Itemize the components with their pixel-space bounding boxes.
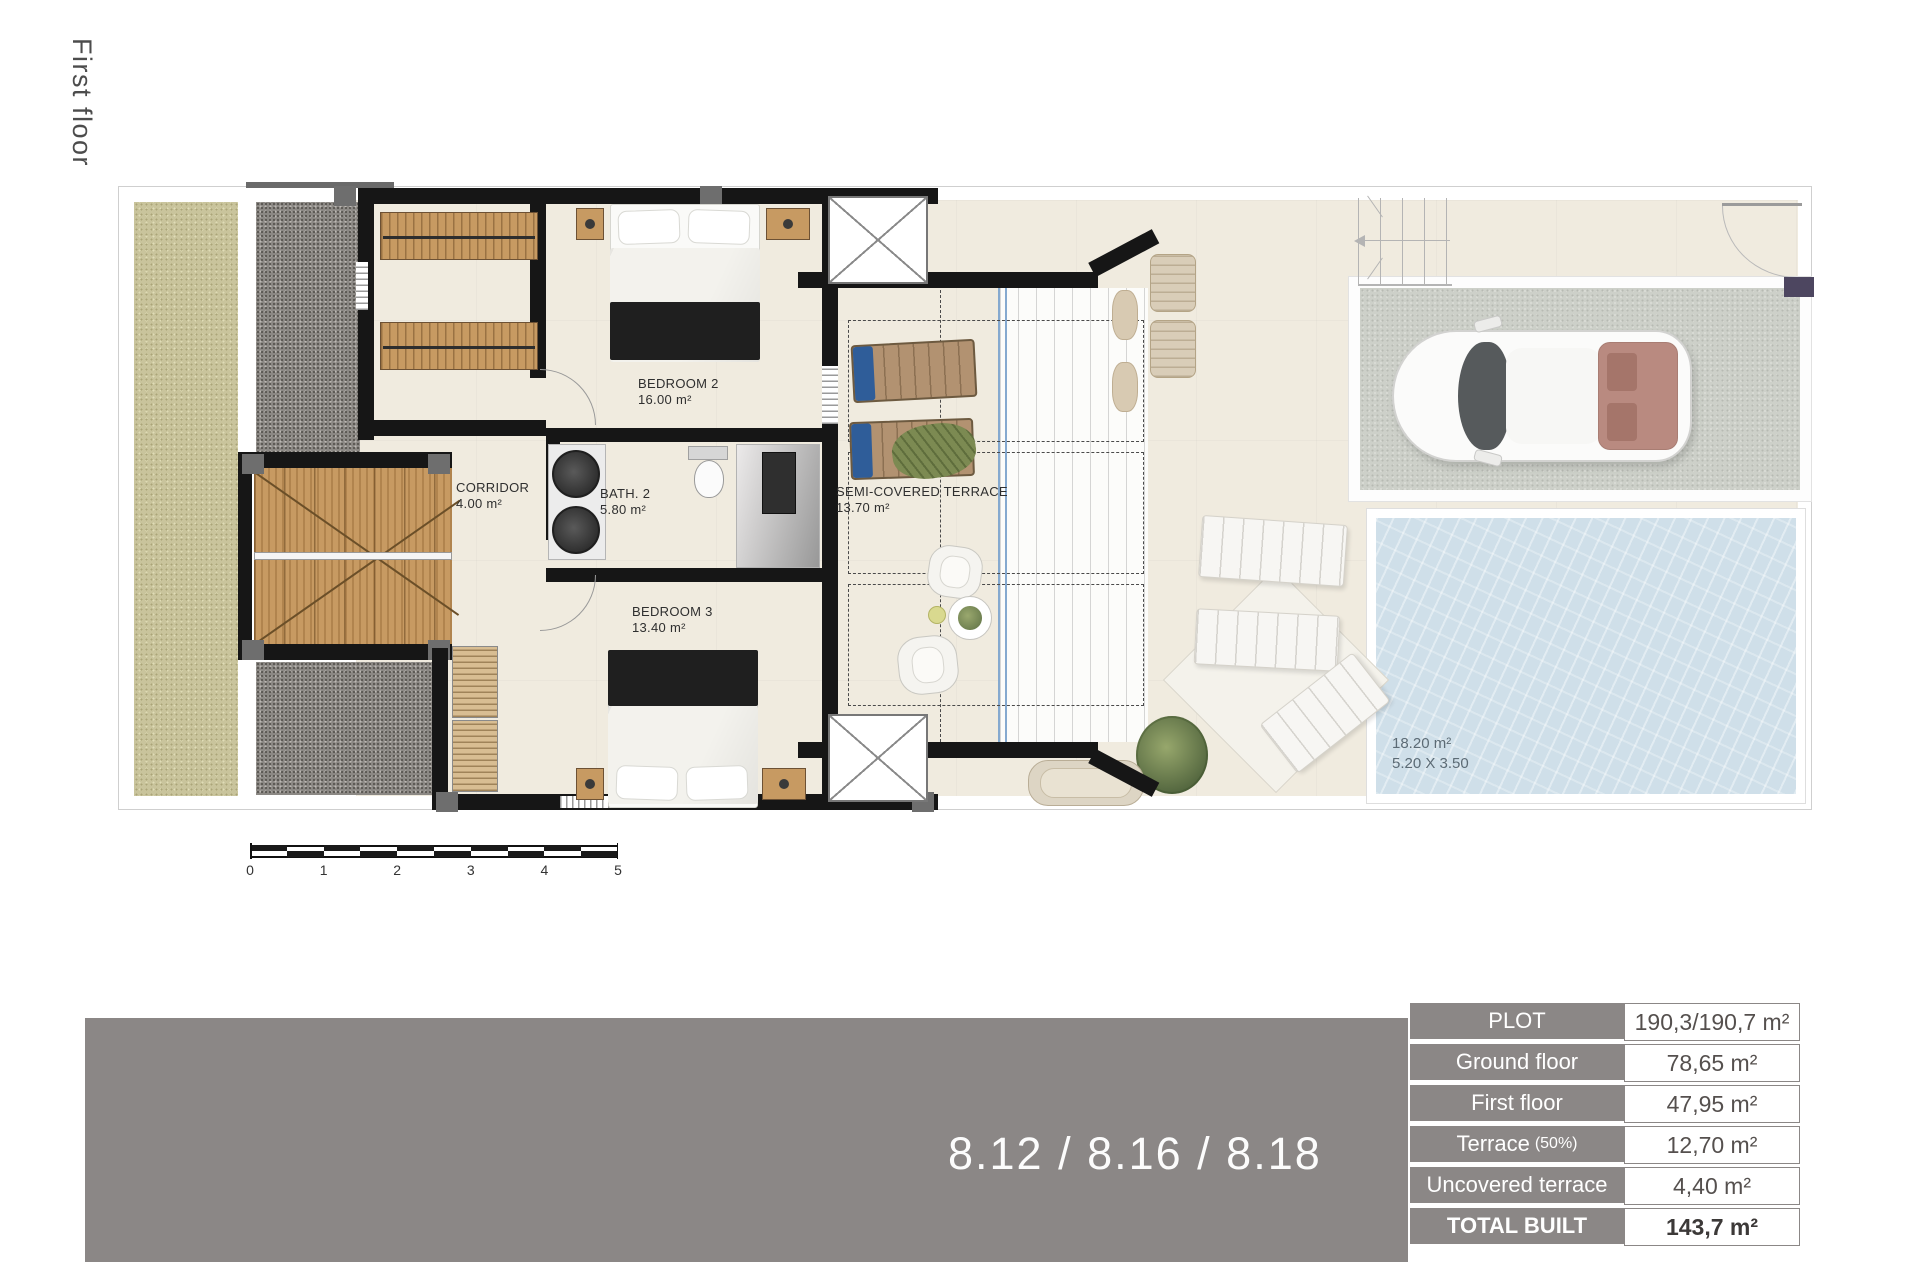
louver-closet-icon — [452, 720, 498, 792]
area-summary-table: PLOT 190,3/190,7 m² Ground floor 78,65 m… — [1410, 1003, 1800, 1249]
armchair-icon — [895, 633, 961, 697]
shaft-icon — [828, 714, 928, 802]
bowl — [928, 606, 946, 624]
sun-lounger-icon — [1194, 608, 1341, 671]
pillow — [617, 209, 680, 245]
wall-post — [436, 792, 458, 812]
nightstand-icon — [576, 768, 604, 800]
round-table-icon — [948, 596, 992, 640]
sun-lounger-icon — [1198, 515, 1348, 587]
scale-bar: 0 1 2 3 4 5 — [250, 843, 618, 883]
sink-icon — [552, 506, 600, 554]
wall — [432, 648, 448, 810]
scale-tick: 3 — [461, 862, 481, 878]
room-label-bedroom2: BEDROOM 2 16.00 m² — [638, 376, 719, 408]
outdoor-seat-icon — [1112, 290, 1138, 340]
grass-strip — [134, 202, 238, 796]
shaft-icon — [828, 196, 928, 284]
stairs-arrow-head — [1354, 235, 1365, 247]
car-windshield — [1458, 342, 1510, 450]
table-row-label: PLOT — [1410, 1003, 1624, 1039]
wall — [358, 188, 374, 440]
wardrobe-icon — [380, 212, 538, 260]
nightstand-icon — [576, 208, 604, 240]
table-row-label-total: TOTAL BUILT — [1410, 1208, 1624, 1244]
pool-label: 18.20 m² 5.20 X 3.50 — [1392, 734, 1469, 774]
room-label-terrace: SEMI-COVERED TERRACE 13.70 m² — [836, 484, 1008, 516]
wall — [238, 452, 252, 660]
wall — [238, 644, 452, 660]
pool-dimensions: 5.20 X 3.50 — [1392, 754, 1469, 774]
bed-throw — [610, 302, 760, 360]
wall-post — [428, 454, 450, 474]
wardrobe-icon — [380, 322, 538, 370]
table-row-label: Ground floor — [1410, 1044, 1624, 1080]
wall — [238, 452, 452, 468]
nightstand-icon — [766, 208, 810, 240]
pool-area: 18.20 m² — [1392, 734, 1469, 754]
table-row-value: 4,40 m² — [1624, 1167, 1800, 1205]
wall — [546, 428, 822, 442]
stairs-arrow-line — [1358, 240, 1450, 241]
room-label-bath2: BATH. 2 5.80 m² — [600, 486, 650, 518]
page-title: First floor — [66, 38, 97, 208]
scale-tick: 5 — [608, 862, 628, 878]
outdoor-lounger-icon — [1150, 254, 1196, 312]
pillow — [615, 765, 678, 801]
stairs-base-line — [1358, 284, 1452, 286]
scale-tick: 4 — [534, 862, 554, 878]
scale-tick: 2 — [387, 862, 407, 878]
unit-banner: 8.12 / 8.16 / 8.18 — [85, 1018, 1408, 1262]
table-row-label: First floor — [1410, 1085, 1624, 1121]
scale-tick: 1 — [314, 862, 334, 878]
pillow — [687, 209, 750, 245]
outdoor-lounger-icon — [1150, 320, 1196, 378]
pergola-dashed-outline — [848, 584, 1144, 706]
wood-lounger-icon — [851, 339, 978, 403]
table-row-value-total: 143,7 m² — [1624, 1208, 1800, 1246]
table-row-label: Terrace (50%) — [1410, 1126, 1624, 1162]
nightstand-icon — [762, 768, 806, 800]
table-row-label: Uncovered terrace — [1410, 1167, 1624, 1203]
pillow — [685, 765, 748, 801]
floor-plan-page: First floor 18.20 m — [0, 0, 1920, 1280]
car-rear-interior — [1598, 342, 1678, 450]
gravel-strip-bottom — [256, 662, 432, 795]
bed-throw — [608, 650, 758, 706]
room-label-bedroom3: BEDROOM 3 13.40 m² — [632, 604, 713, 636]
gravel-strip-top — [256, 202, 360, 455]
wall-post — [334, 186, 356, 206]
window — [356, 262, 368, 310]
wall-post — [242, 454, 264, 474]
table-row-value: 78,65 m² — [1624, 1044, 1800, 1082]
sink-icon — [552, 450, 600, 498]
shower-column — [762, 452, 796, 514]
toilet-bowl — [694, 460, 724, 498]
scale-tick: 0 — [240, 862, 260, 878]
louver-closet-icon — [452, 646, 498, 718]
table-row-value: 47,95 m² — [1624, 1085, 1800, 1123]
room-label-corridor: CORRIDOR 4.00 m² — [456, 480, 529, 512]
unit-numbers: 8.12 / 8.16 / 8.18 — [948, 1128, 1322, 1180]
gate-post — [1784, 277, 1814, 297]
wall-post — [700, 186, 722, 206]
wall — [358, 420, 546, 436]
car-roof — [1506, 348, 1602, 444]
wall-post — [242, 640, 264, 660]
toilet-icon — [688, 446, 728, 460]
table-row-value: 12,70 m² — [1624, 1126, 1800, 1164]
outdoor-seat-icon — [1112, 362, 1138, 412]
stair-rail — [254, 552, 452, 560]
window — [822, 366, 838, 424]
table-row-value: 190,3/190,7 m² — [1624, 1003, 1800, 1041]
